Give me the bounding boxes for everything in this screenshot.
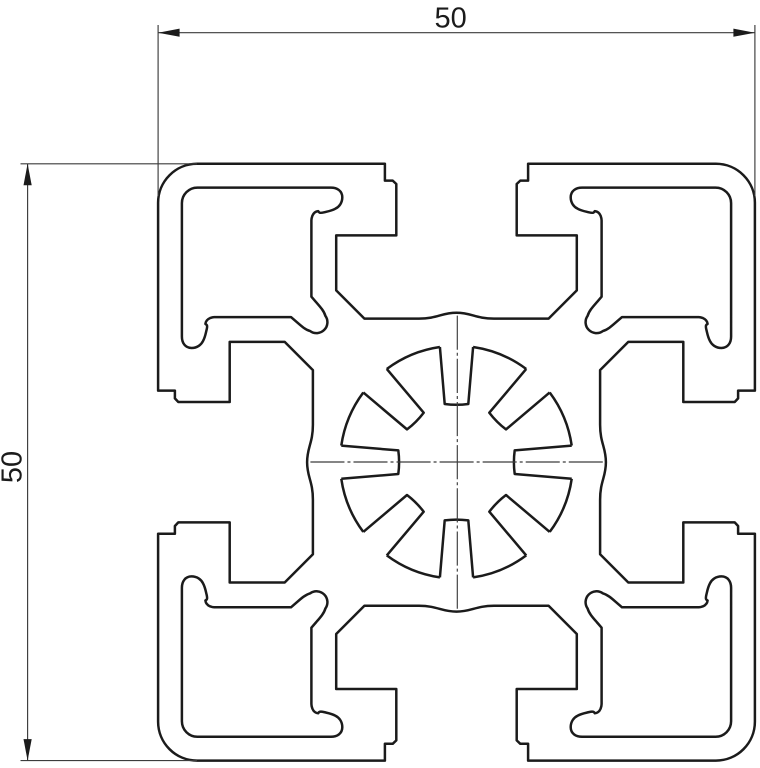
- svg-text:50: 50: [0, 451, 28, 483]
- svg-text:50: 50: [434, 2, 466, 34]
